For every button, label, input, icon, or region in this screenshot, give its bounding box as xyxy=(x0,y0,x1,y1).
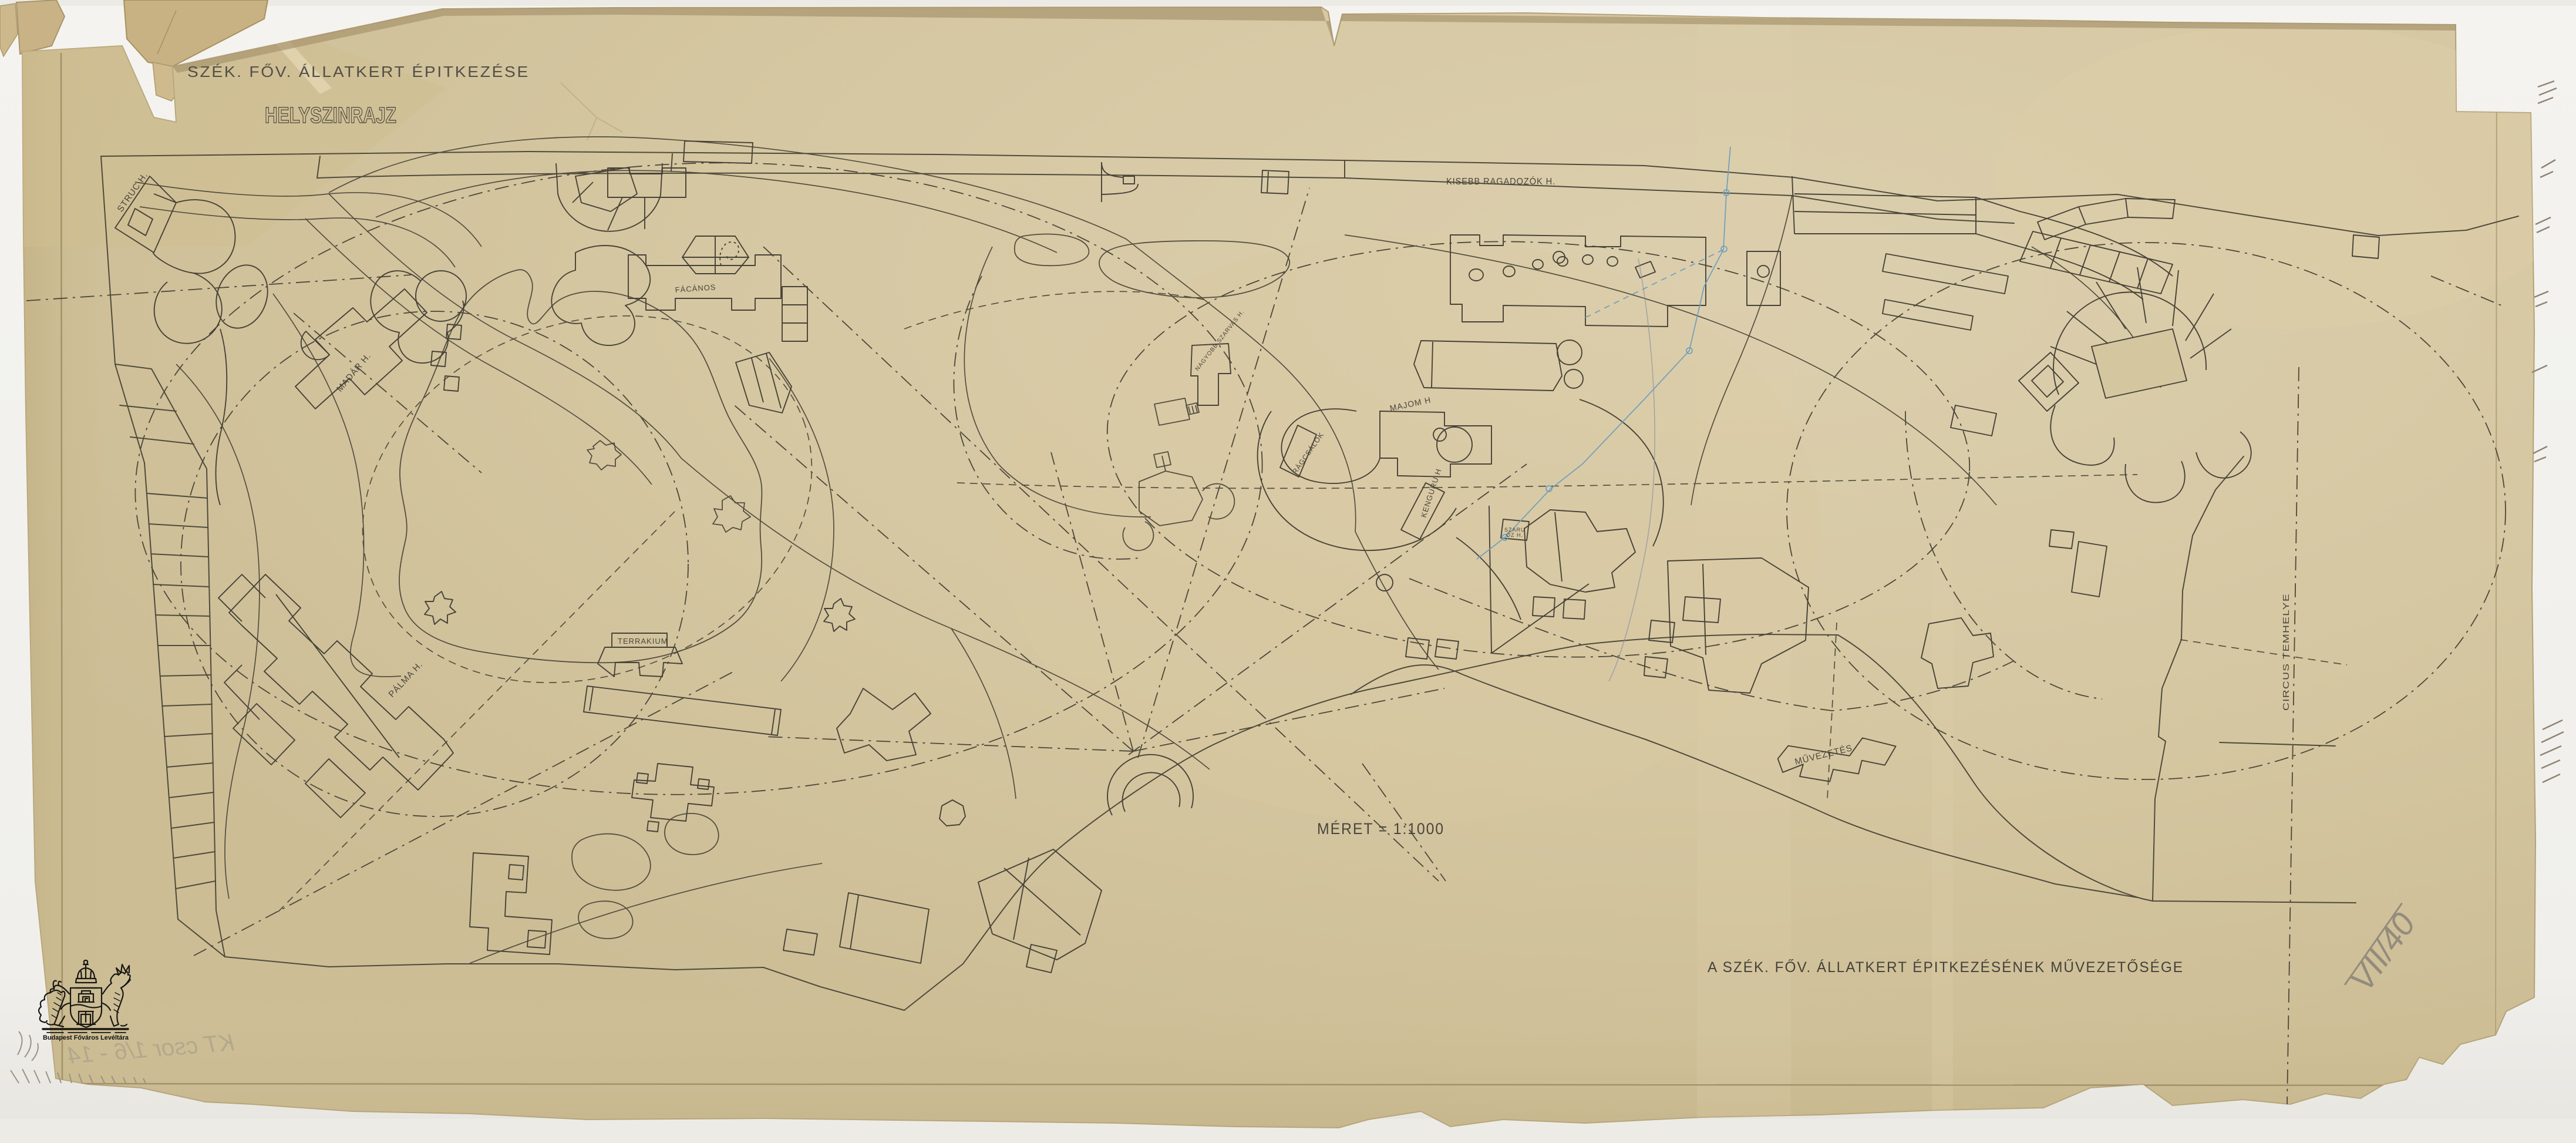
svg-text:HELYSZINRAJZ: HELYSZINRAJZ xyxy=(265,103,396,128)
svg-text:CIRCUS TEMHELYE: CIRCUS TEMHELYE xyxy=(2281,593,2291,711)
svg-text:A SZÉK. FŐV. ÁLLATKERT ÉPITKEZ: A SZÉK. FŐV. ÁLLATKERT ÉPITKEZÉSÉNEK MŰV… xyxy=(1708,959,2184,976)
svg-text:TERRAKIUM: TERRAKIUM xyxy=(618,637,668,646)
svg-text:ŐZ H.: ŐZ H. xyxy=(1506,532,1523,538)
svg-text:KISEBB RAGADOZÓK H.: KISEBB RAGADOZÓK H. xyxy=(1446,176,1555,187)
svg-text:SZÉK. FŐV. ÁLLATKERT ÉPITKEZÉS: SZÉK. FŐV. ÁLLATKERT ÉPITKEZÉSE xyxy=(187,63,530,80)
svg-text:MÉRET = 1:1000: MÉRET = 1:1000 xyxy=(1317,820,1444,838)
